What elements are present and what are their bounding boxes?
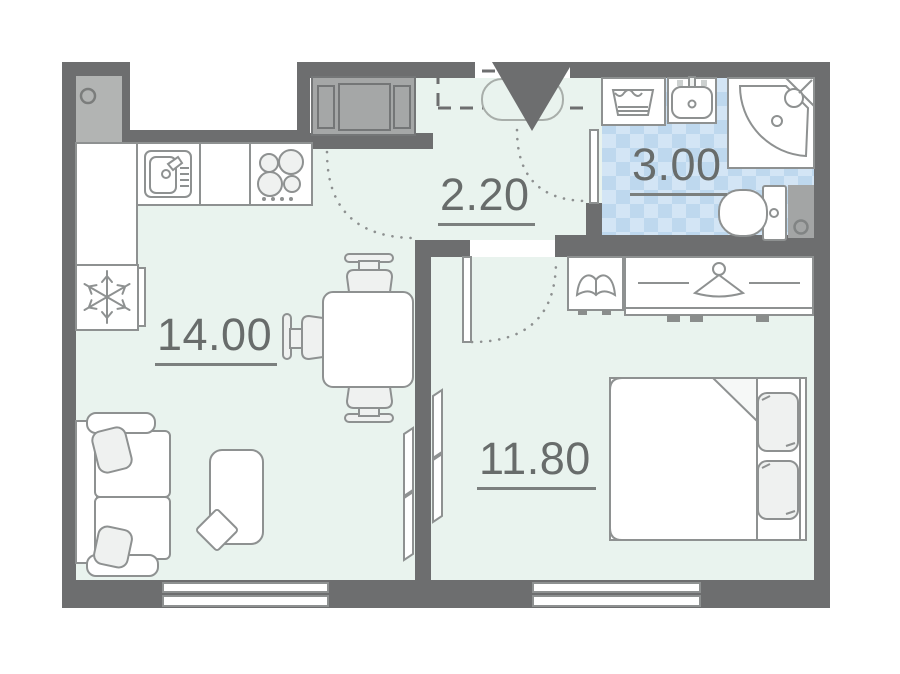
wall-partition bbox=[415, 240, 431, 580]
sofa bbox=[76, 413, 170, 576]
bathroom-sink bbox=[668, 77, 716, 123]
chair bbox=[345, 254, 393, 292]
fridge bbox=[76, 265, 145, 330]
kitchen-stove-module bbox=[250, 143, 312, 205]
sink-basin-icon bbox=[672, 77, 712, 118]
dining-table bbox=[323, 292, 413, 387]
door-swing-living bbox=[327, 152, 412, 238]
area-label-bedroom: 11.80 bbox=[477, 436, 596, 490]
area-label-living-kitchen: 14.00 bbox=[155, 312, 277, 366]
entrance bbox=[438, 62, 586, 131]
window-bedroom bbox=[533, 596, 700, 606]
wall-left bbox=[62, 62, 76, 608]
kitchen-cabinet bbox=[76, 143, 137, 265]
kitchen-cabinet bbox=[200, 143, 250, 205]
dining-set bbox=[283, 254, 413, 422]
corner-shower bbox=[728, 78, 814, 168]
door-swing-bedroom bbox=[472, 261, 556, 342]
sofa-pillow bbox=[92, 525, 133, 569]
chair bbox=[283, 314, 323, 359]
bathroom-door-leaf bbox=[590, 130, 598, 203]
wall-right bbox=[814, 62, 830, 608]
rug bbox=[196, 450, 263, 551]
toilet-bowl bbox=[719, 190, 767, 236]
area-label-hallway: 2.20 bbox=[438, 172, 535, 226]
open-book-icon bbox=[577, 275, 615, 295]
bed-pillow bbox=[758, 461, 798, 519]
plan-drawing bbox=[0, 0, 900, 674]
floor-plan: 14.00 2.20 3.00 11.80 bbox=[0, 0, 900, 674]
wall-top-right bbox=[570, 62, 830, 78]
window-living bbox=[163, 596, 328, 606]
wardrobe bbox=[625, 257, 813, 322]
vent-shaft-kitchen bbox=[76, 76, 122, 143]
washing-machine bbox=[602, 78, 665, 125]
nightstand bbox=[568, 257, 623, 315]
folding-door-leaves-bedroom bbox=[433, 390, 442, 522]
toilet bbox=[719, 186, 786, 240]
window-living bbox=[163, 583, 328, 592]
wall-kitchen-top bbox=[130, 130, 310, 143]
bed-pillow bbox=[758, 393, 798, 451]
window-bedroom bbox=[533, 583, 700, 592]
chair bbox=[345, 387, 393, 422]
wall-bath-stub bbox=[586, 203, 602, 240]
bed-blanket bbox=[610, 378, 757, 540]
folding-door-leaves-living bbox=[404, 428, 413, 560]
bedroom-door-leaf bbox=[463, 257, 471, 342]
bed bbox=[610, 378, 806, 540]
vent-shaft-bathroom bbox=[788, 185, 814, 238]
hall-cabinet bbox=[312, 77, 415, 135]
area-label-bathroom: 3.00 bbox=[630, 142, 727, 196]
